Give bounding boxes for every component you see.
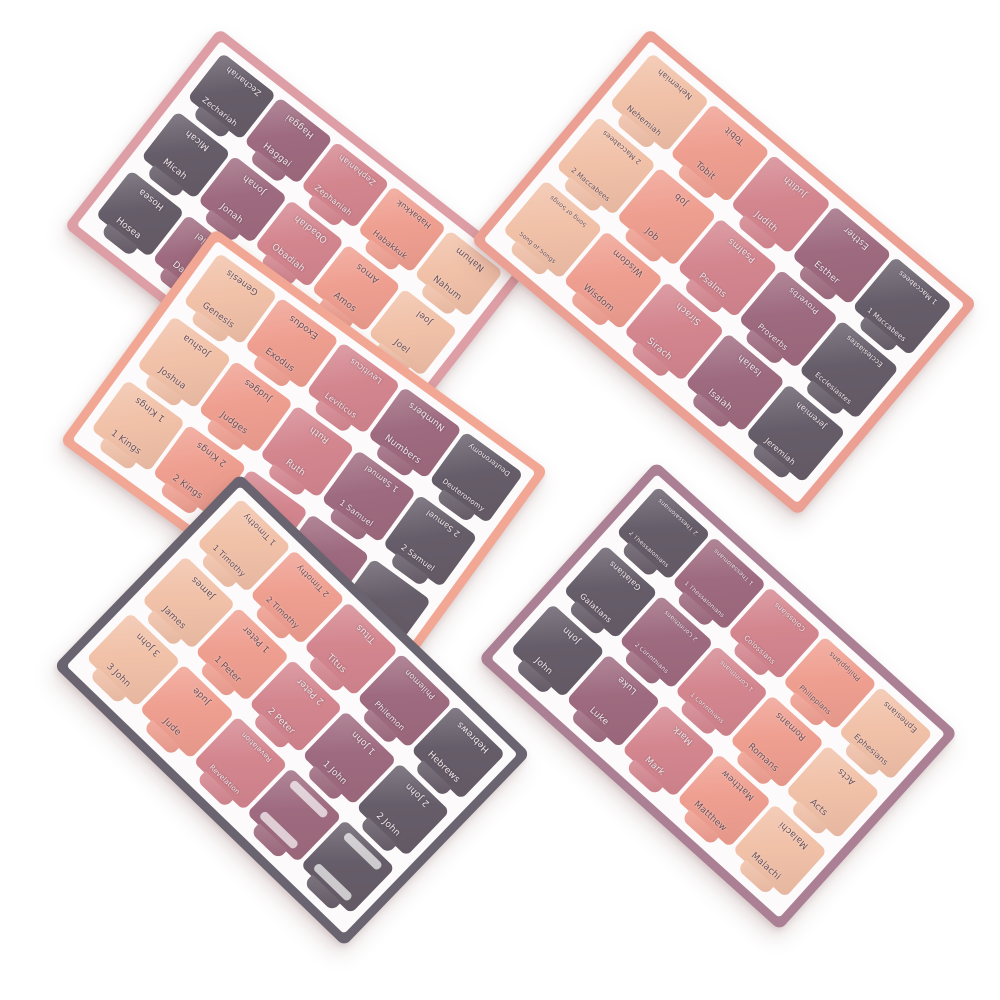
tab-label-flipped-judith: Judith [765,159,826,213]
tab-label-flipped-zephaniah: Zephaniah [329,146,385,193]
tab-label-flipped-habakkuk: Habakkuk [386,191,442,238]
tab-label-flipped-hebrews: Hebrews [446,710,501,764]
tab-label-flipped-esther: Esther [826,210,887,264]
tab-label-flipped-nehemiah: Nehemiah [645,58,705,111]
tab-label-flipped-1-thessalonians: 1 Thessalonians [707,541,761,591]
tab-label-flipped-1-timothy: 1 Timothy [232,503,286,556]
sheet-backing-gospels-epistles-1: 2 Thessalonians2 Thessalonians1 Thessalo… [491,474,945,918]
sticker-sheet-gospels-epistles-1: 2 Thessalonians2 Thessalonians1 Thessalo… [478,461,958,930]
tab-label-flipped-genesis: Genesis [212,258,273,306]
sheet-backing-wisdom-books: NehemiahNehemiahTobitTobitJudithJudithEs… [483,41,964,504]
tab-label-flipped-tobit: Tobit [705,109,766,163]
tab-label-flipped-1-maccabees: 1 Maccabees [888,261,948,313]
tab-label-flipped-exodus: Exodus [274,302,335,350]
tab-label-flipped-philippians: Philippians [818,641,873,692]
tab-label-flipped-ephesians: Ephesians [872,691,928,743]
tab-label-flipped-numbers: Numbers [397,392,458,440]
tab-label-flipped-zechariah: Zechariah [216,58,272,105]
tab-label-flipped-2-timothy: 2 Timothy [286,555,340,608]
tab-label-flipped-leviticus: Leviticus [336,347,396,394]
tab-label-flipped-deuteronomy: Deuteronomy [459,436,519,482]
tab-label-flipped-philemon: Philemon [393,658,447,711]
tab-label-flipped-titus: Titus [339,606,394,660]
sticker-sheet-wisdom-books: NehemiahNehemiahTobitTobitJudithJudithEs… [471,28,978,516]
tab-label-flipped-2-thessalonians: 2 Thessalonians [652,491,706,541]
tab-label-flipped-haggai: Haggai [272,102,329,150]
tab-label-flipped-colossians: Colossians [762,591,817,642]
product-photo-bible-tab-sheets: ZechariahZechariahHaggaiHaggaiZephaniahZ… [0,0,1000,1000]
